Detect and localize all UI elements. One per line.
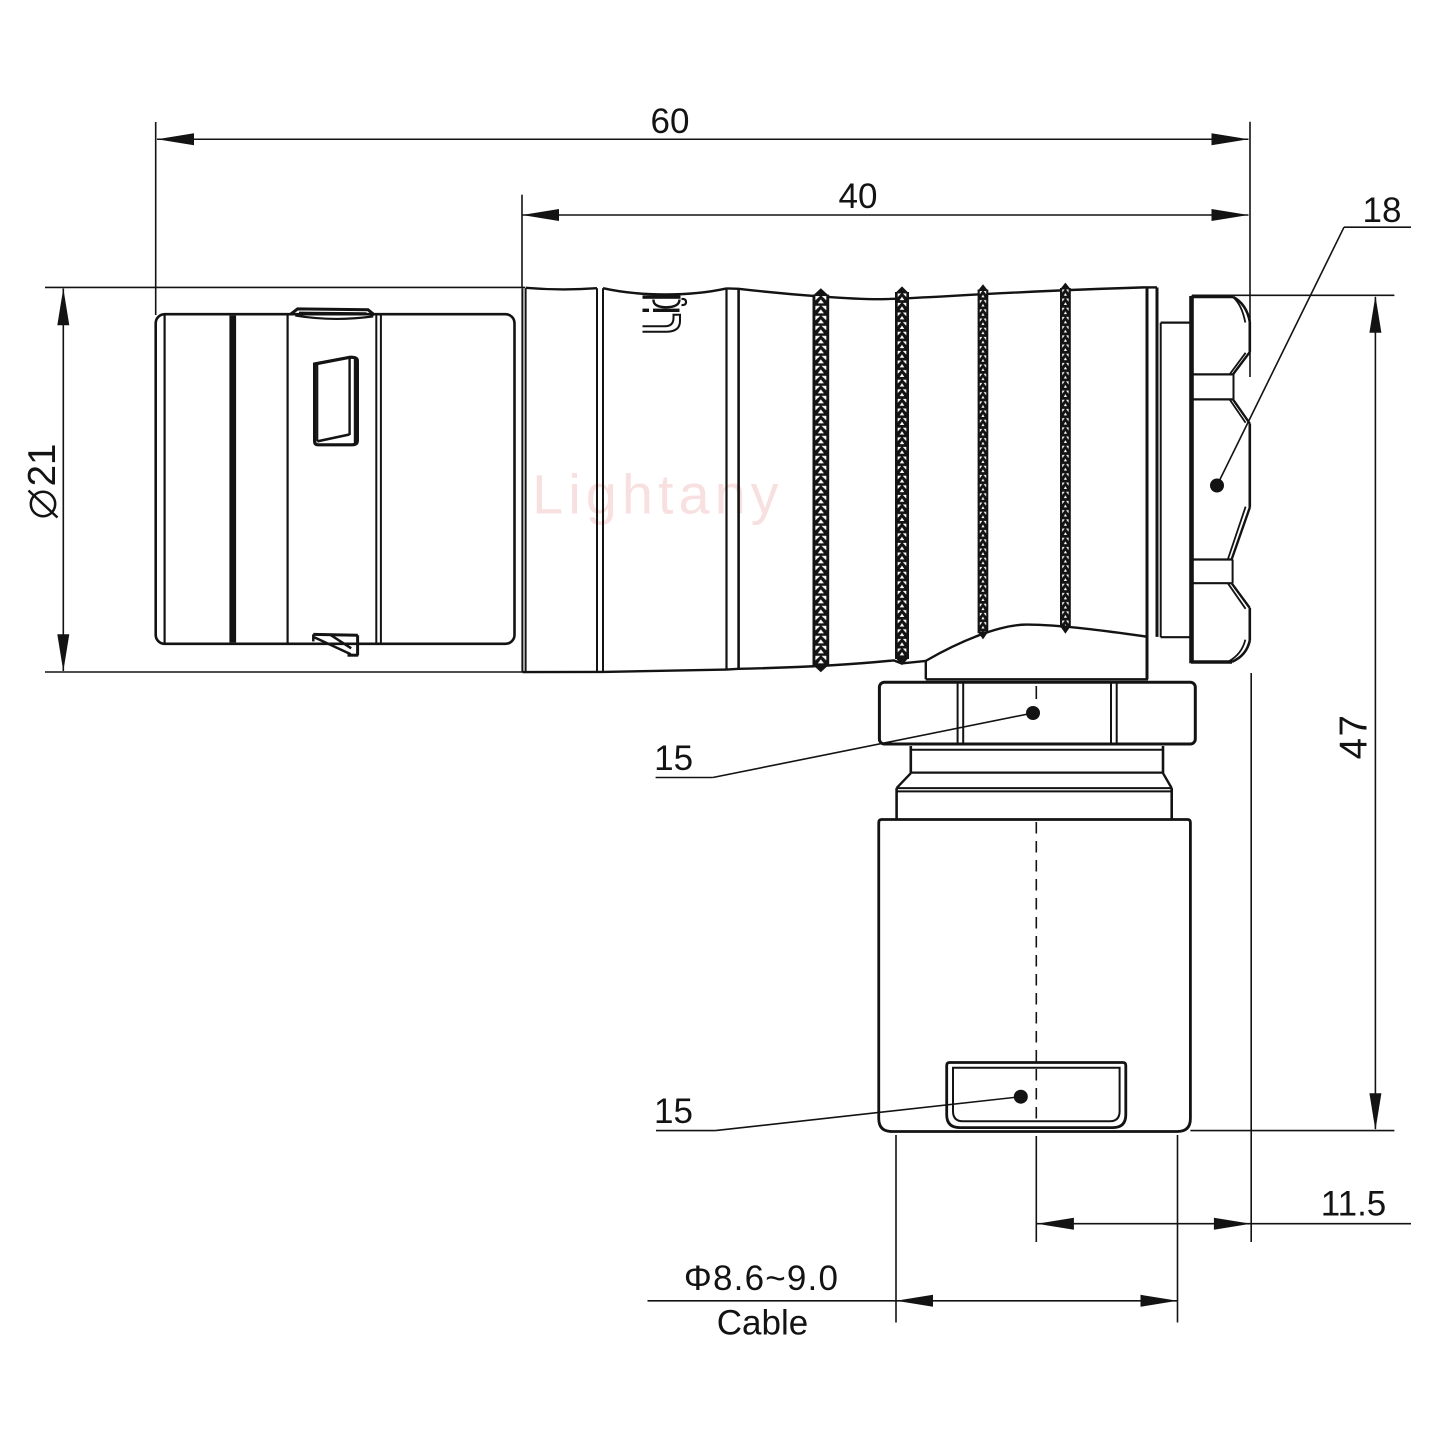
svg-text:Φ8.6~9.0: Φ8.6~9.0 [684,1259,839,1298]
svg-text:47: 47 [1333,714,1376,760]
svg-text:Lightany: Lightany [532,464,783,526]
svg-text:11.5: 11.5 [1321,1185,1387,1224]
svg-text:40: 40 [839,177,878,216]
svg-text:60: 60 [651,102,690,141]
svg-text:Cable: Cable [717,1304,808,1343]
svg-text:18: 18 [1363,191,1402,230]
svg-text:15: 15 [654,1092,693,1131]
svg-text:15: 15 [654,739,693,778]
svg-text:21: 21 [21,444,64,487]
